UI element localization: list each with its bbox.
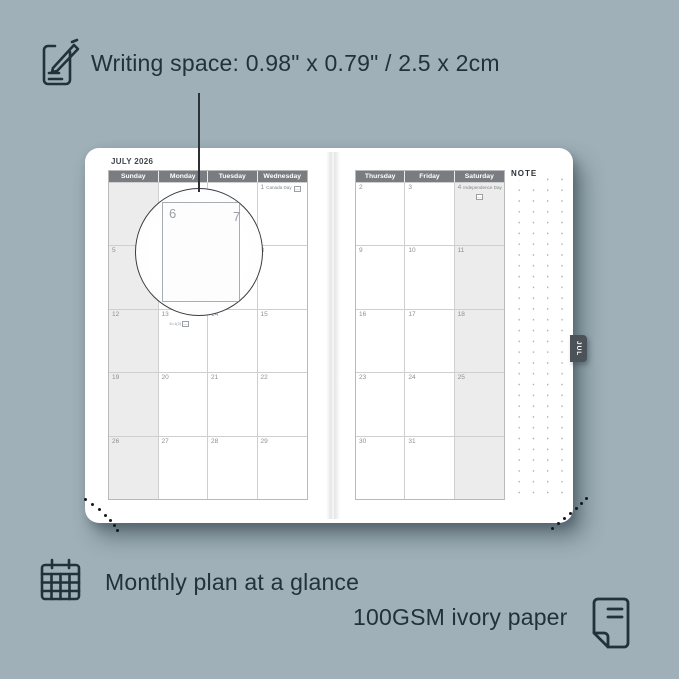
magnified-date-6: 6 xyxy=(169,206,176,221)
calendar-cell-18: 18 xyxy=(455,309,504,372)
date-number: 11 xyxy=(458,248,465,255)
date-number: 19 xyxy=(112,375,119,382)
writing-note-icon xyxy=(41,38,81,88)
day-header-tuesday: Tuesday xyxy=(208,171,258,182)
stitch-dot xyxy=(98,508,101,511)
stitch-dot xyxy=(91,503,94,506)
calendar-cell-28: 28 xyxy=(208,436,258,499)
calendar-cell-10: 10 xyxy=(405,245,454,308)
date-number: 29 xyxy=(261,439,268,446)
calendar-cell-12: 12 xyxy=(109,309,159,372)
stitch-dot xyxy=(563,517,566,520)
date-number: 25 xyxy=(458,375,465,382)
date-number: 1 xyxy=(261,185,265,192)
calendar-cell-9: 9 xyxy=(356,245,405,308)
calendar-cell-17: 17 xyxy=(405,309,454,372)
month-tab: JUL xyxy=(570,335,587,362)
stitch-dot xyxy=(575,507,578,510)
month-title: JULY 2026 xyxy=(111,157,153,166)
calendar-cell-14: 14 xyxy=(208,309,258,372)
date-number: 15 xyxy=(261,312,268,319)
calendar-cell-22: 22 xyxy=(258,372,308,435)
stitch-dot xyxy=(84,498,87,501)
calendar-cell-16: 16 xyxy=(356,309,405,372)
stitch-dot xyxy=(557,522,560,525)
book-spine xyxy=(326,152,340,519)
date-number: 20 xyxy=(162,375,169,382)
note-dot-grid xyxy=(508,172,570,498)
paper-sheet-icon xyxy=(588,595,636,651)
calendar-cell-27: 27 xyxy=(159,436,209,499)
date-number: 30 xyxy=(359,439,366,446)
maple-leaf-icon xyxy=(294,186,301,192)
date-number: 5 xyxy=(112,248,116,255)
holiday-label: Canada Day xyxy=(266,185,292,191)
month-tab-label: JUL xyxy=(575,341,582,356)
calendar-cell-1: 1Canada Day xyxy=(258,182,308,245)
calendar-cell-8: 8 xyxy=(258,245,308,308)
stitch-dot xyxy=(113,524,116,527)
date-number: 21 xyxy=(211,375,218,382)
day-header-sunday: Sunday xyxy=(109,171,159,182)
date-number: 3 xyxy=(408,185,412,192)
date-number: 4 xyxy=(458,185,462,192)
magnified-date-7: 7 xyxy=(233,209,240,224)
tiny-box-icon xyxy=(182,321,189,327)
calendar-cell-29: 29 xyxy=(258,436,308,499)
calendar-cell-19: 19 xyxy=(109,372,159,435)
date-number: 2 xyxy=(359,185,363,192)
date-number: 31 xyxy=(408,439,415,446)
calendar-cell-24: 24 xyxy=(405,372,454,435)
calendar-cell-23: 23 xyxy=(356,372,405,435)
date-number: 16 xyxy=(359,312,366,319)
us-flag-icon xyxy=(476,194,483,200)
date-number: 9 xyxy=(359,248,363,255)
calendar-icon xyxy=(38,557,84,603)
date-number: 22 xyxy=(261,375,268,382)
day-header-saturday: Saturday xyxy=(455,171,504,182)
date-number: 23 xyxy=(359,375,366,382)
callout-line xyxy=(198,93,200,192)
monthly-plan-label: Monthly plan at a glance xyxy=(105,569,359,596)
date-number: 13 xyxy=(162,312,169,319)
calendar-cell xyxy=(455,436,504,499)
stitch-dot xyxy=(585,497,588,500)
stitch-dot xyxy=(104,514,107,517)
holiday-label: Independence Day xyxy=(463,185,502,191)
day-header-wednesday: Wednesday xyxy=(258,171,308,182)
date-number: 12 xyxy=(112,312,119,319)
calendar-cell-11: 11 xyxy=(455,245,504,308)
product-image-canvas: Writing space: 0.98" x 0.79" / 2.5 x 2cm… xyxy=(0,0,679,679)
day-header-thursday: Thursday xyxy=(356,171,405,182)
cell-annotation: 6=1(2) xyxy=(170,320,208,327)
date-number: 24 xyxy=(408,375,415,382)
calendar-cell-13: 136=1(2) xyxy=(159,309,209,372)
calendar-cell-2: 2 xyxy=(356,182,405,245)
date-number: 10 xyxy=(408,248,415,255)
calendar-cell-3: 3 xyxy=(405,182,454,245)
calendar-cell-20: 20 xyxy=(159,372,209,435)
stitch-dot xyxy=(116,529,119,532)
writing-space-label: Writing space: 0.98" x 0.79" / 2.5 x 2cm xyxy=(91,50,500,77)
day-header-friday: Friday xyxy=(405,171,454,182)
magnifier-circle: 6 7 xyxy=(135,188,263,316)
date-number: 26 xyxy=(112,439,119,446)
calendar-cell-15: 15 xyxy=(258,309,308,372)
calendar-cell-4: 4Independence Day xyxy=(455,182,504,245)
stitch-dot xyxy=(109,519,112,522)
date-number: 28 xyxy=(211,439,218,446)
stitch-dot xyxy=(569,512,572,515)
date-number: 27 xyxy=(162,439,169,446)
calendar-cell-25: 25 xyxy=(455,372,504,435)
paper-label: 100GSM ivory paper xyxy=(353,604,568,631)
date-number: 17 xyxy=(408,312,415,319)
stitch-dot xyxy=(580,502,583,505)
day-header-row: ThursdayFridaySaturday xyxy=(356,171,504,182)
calendar-cell-31: 31 xyxy=(405,436,454,499)
calendar-grid: 234Independence Day910111617182324253031 xyxy=(356,182,504,499)
day-header-monday: Monday xyxy=(159,171,209,182)
stitch-dot xyxy=(551,527,554,530)
note-label: NOTE xyxy=(509,168,542,180)
date-number: 18 xyxy=(458,312,465,319)
calendar-cell-30: 30 xyxy=(356,436,405,499)
calendar-right-page: ThursdayFridaySaturday 234Independence D… xyxy=(355,170,505,500)
calendar-cell-26: 26 xyxy=(109,436,159,499)
day-header-row: SundayMondayTuesdayWednesday xyxy=(109,171,307,182)
calendar-cell-21: 21 xyxy=(208,372,258,435)
